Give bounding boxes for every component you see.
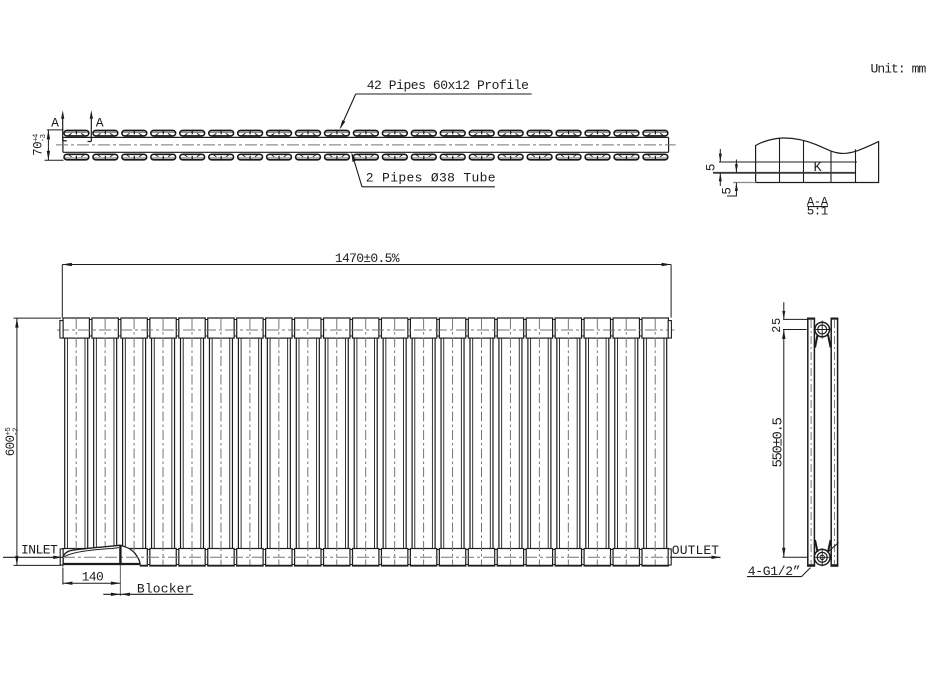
- svg-text:25: 25: [770, 317, 784, 333]
- svg-text:Blocker: Blocker: [137, 581, 193, 596]
- svg-text:K: K: [813, 161, 822, 176]
- svg-text:A: A: [51, 115, 59, 130]
- svg-text:INLET: INLET: [21, 543, 58, 558]
- svg-text:140: 140: [82, 569, 104, 584]
- svg-text:Unit: mm: Unit: mm: [871, 62, 927, 77]
- svg-text:5: 5: [721, 187, 735, 195]
- svg-text:70+4-3: 70+4-3: [32, 133, 49, 156]
- svg-text:550±0.5: 550±0.5: [770, 417, 786, 467]
- svg-text:1470±0.5%: 1470±0.5%: [335, 251, 400, 266]
- svg-text:A: A: [96, 115, 104, 130]
- svg-text:600+5-2: 600+5-2: [4, 427, 21, 457]
- svg-text:42 Pipes 60x12 Profile: 42 Pipes 60x12 Profile: [367, 78, 529, 93]
- svg-text:2 Pipes Ø38 Tube: 2 Pipes Ø38 Tube: [366, 170, 496, 185]
- svg-text:5: 5: [705, 164, 719, 172]
- svg-text:5:1: 5:1: [807, 205, 828, 219]
